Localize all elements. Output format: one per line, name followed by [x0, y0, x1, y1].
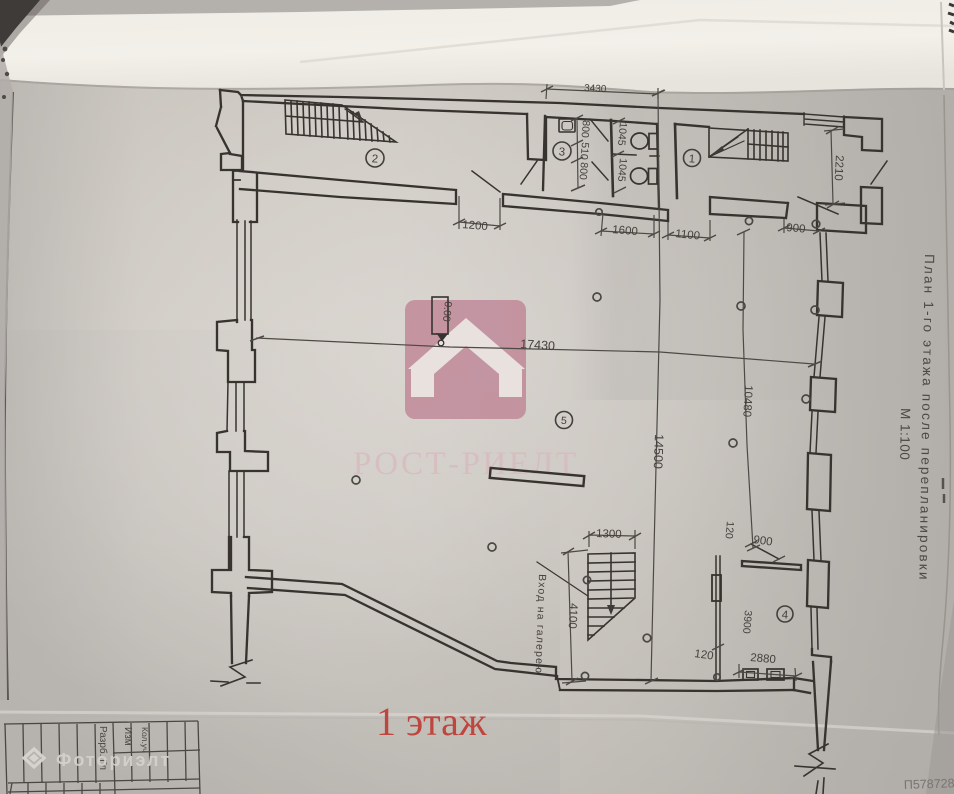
- svg-text:4100: 4100: [566, 603, 579, 629]
- svg-text:0.00: 0.00: [440, 301, 454, 323]
- svg-text:900: 900: [786, 222, 806, 236]
- svg-text:Фоториэлт: Фоториэлт: [56, 750, 171, 770]
- svg-text:800: 800: [578, 120, 591, 139]
- svg-text:П578728: П578728: [904, 776, 954, 792]
- svg-text:1: 1: [688, 153, 695, 165]
- svg-text:М 1:100: М 1:100: [897, 408, 913, 461]
- svg-text:1600: 1600: [612, 224, 639, 238]
- svg-text:1300: 1300: [596, 528, 622, 541]
- svg-text:РОСТ-РИЕЛТ: РОСТ-РИЕЛТ: [353, 446, 579, 482]
- svg-text:10480: 10480: [740, 385, 754, 418]
- svg-text:1045: 1045: [615, 158, 629, 182]
- svg-text:2210: 2210: [832, 155, 845, 181]
- svg-text:2880: 2880: [750, 652, 777, 666]
- svg-text:800: 800: [576, 162, 589, 181]
- svg-text:3430: 3430: [584, 83, 607, 95]
- svg-text:14500: 14500: [651, 434, 666, 469]
- svg-text:17430: 17430: [520, 337, 556, 353]
- svg-text:1 этаж: 1 этаж: [376, 699, 487, 744]
- svg-text:1100: 1100: [675, 228, 701, 243]
- svg-text:1200: 1200: [462, 219, 489, 233]
- svg-text:3: 3: [558, 146, 565, 158]
- svg-text:120: 120: [722, 521, 735, 540]
- svg-text:5: 5: [561, 415, 568, 427]
- svg-text:1045: 1045: [615, 122, 629, 146]
- svg-text:510: 510: [577, 142, 590, 161]
- svg-text:Изм: Изм: [122, 727, 133, 746]
- svg-text:2: 2: [371, 153, 378, 165]
- svg-text:3900: 3900: [740, 610, 754, 634]
- svg-text:Кол.уч: Кол.уч: [140, 727, 150, 753]
